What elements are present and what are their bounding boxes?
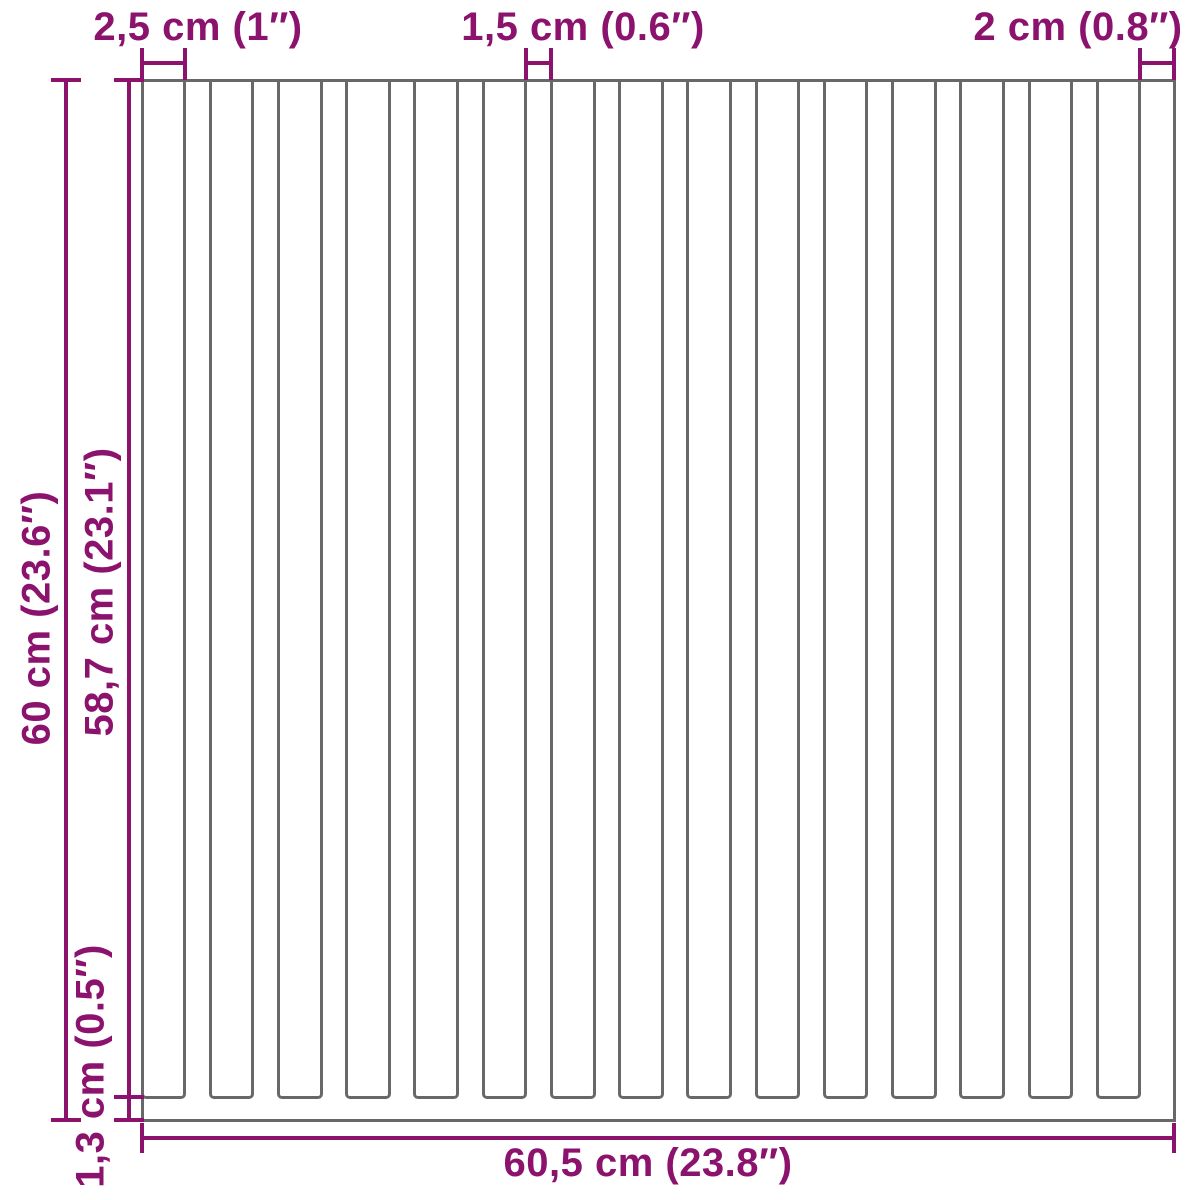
slat	[959, 79, 1005, 1099]
dimension-diagram: 2,5 cm (1″) 1,5 cm (0.6″) 2 cm (0.8″) 60…	[0, 0, 1200, 1200]
slat	[550, 79, 596, 1099]
label-total-height: 60 cm (23.6″)	[15, 491, 58, 746]
slat	[686, 79, 732, 1099]
label-wide-slat-width: 2,5 cm (1″)	[93, 6, 302, 49]
slat	[209, 79, 255, 1099]
slat	[1096, 79, 1142, 1099]
dim-bracket-narrow-gap	[526, 61, 552, 65]
dim-bracket-end-slat	[1140, 61, 1174, 65]
label-narrow-gap-width: 1,5 cm (0.6″)	[461, 6, 705, 49]
label-end-slat-width: 2 cm (0.8″)	[973, 6, 1182, 49]
slat	[141, 79, 187, 1099]
slat	[345, 79, 391, 1099]
dim-line-slat-length-58-7cm	[127, 80, 131, 1120]
slat	[413, 79, 459, 1099]
slatted-panel	[141, 79, 1176, 1122]
label-total-width: 60,5 cm (23.8″)	[503, 1142, 792, 1185]
slat	[891, 79, 937, 1099]
slat	[1028, 79, 1074, 1099]
dim-line-width-60-5cm	[142, 1136, 1174, 1140]
slat	[482, 79, 528, 1099]
dim-bracket-wide-slat	[142, 61, 185, 65]
label-slat-length: 58,7 cm (23.1″)	[78, 447, 121, 736]
dim-line-height-60cm	[64, 80, 68, 1120]
slat	[755, 79, 801, 1099]
slat	[618, 79, 664, 1099]
slat	[277, 79, 323, 1099]
dim-tick-bottom-rail	[114, 1095, 144, 1099]
slat	[823, 79, 869, 1099]
label-bottom-rail: 1,3 cm (0.5″)	[69, 944, 112, 1188]
